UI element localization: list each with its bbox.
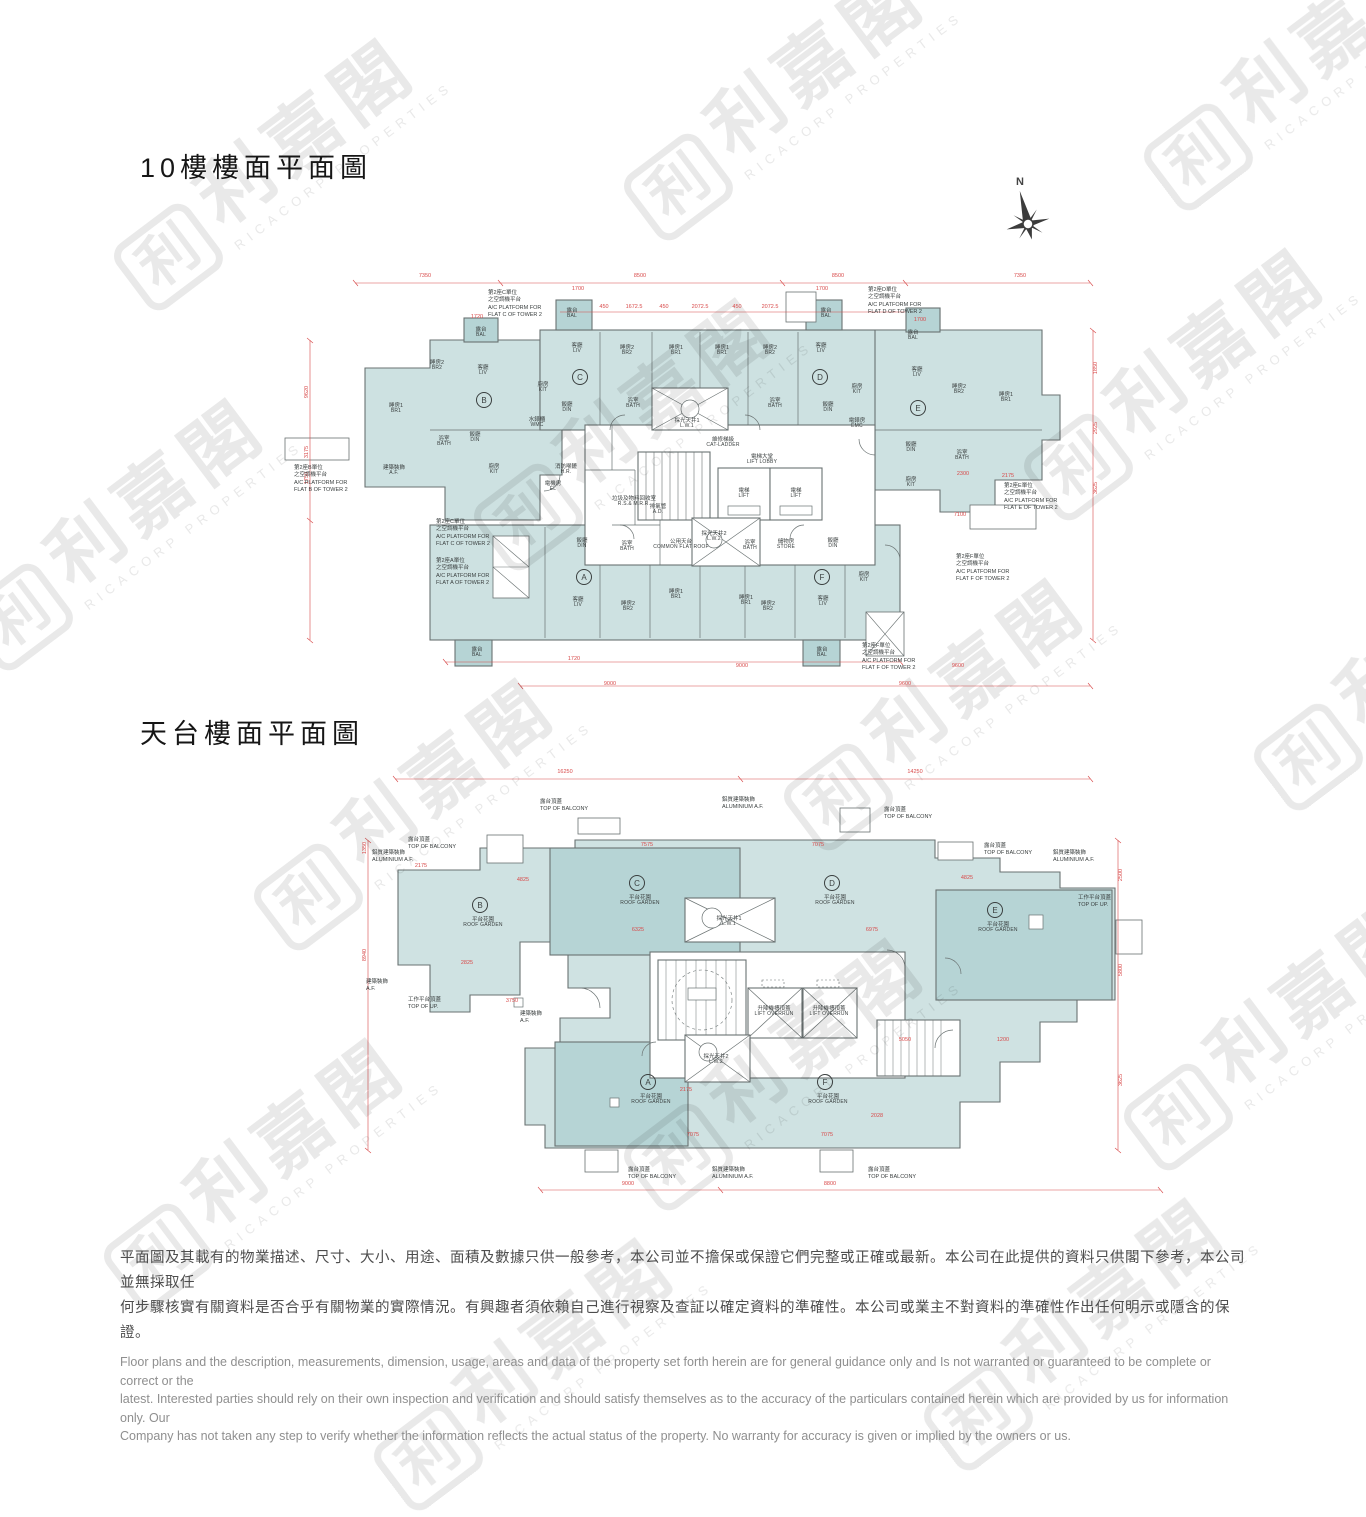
roof-callout: 露台頂蓋TOP OF BALCONY [408,837,456,852]
room-name-en: BR1 [669,595,683,601]
room-name-en: BR2 [621,607,635,613]
plan10-flat-E: E [910,400,926,416]
room-name-en: LIV [817,602,828,608]
roof-callout: 露台頂蓋TOP OF BALCONY [868,1167,916,1182]
plan10-room-label: 電機房EL [545,481,562,493]
plan10-dim-label: 450 [732,304,741,310]
plan10-room-label: 睡房1BR1 [669,589,683,601]
room-name-en: DIN [469,438,480,444]
callout-line: A/C PLATFORM FOR [436,534,490,541]
plan10-room-label: 電錶房EMC [849,418,866,430]
roof-dim-label: 1200 [997,1037,1009,1043]
disclaimer-en-line: Company has not taken any step to verify… [120,1427,1250,1446]
plan10-room-label: 浴室BATH [620,541,634,553]
room-name-en: A.D. [650,510,667,516]
room-name-en: ROOF GARDEN [815,901,854,907]
plan10-room-label: 露台BAL [566,308,577,320]
room-name-en: BR1 [999,398,1013,404]
plan10-room-label: 浴室BATH [626,398,640,410]
callout-line: A/C PLATFORM FOR [294,480,348,487]
roof-dim-label: 3625 [1118,1074,1124,1086]
room-name-en: LIV [572,603,583,609]
plan10-flat-F: F [814,569,830,585]
roof-callout: 建築裝飾A.F. [366,979,388,994]
room-name-en: KIT [851,390,862,396]
callout-line: FLAT C OF TOWER 2 [488,312,542,319]
room-name-en: BR1 [669,351,683,357]
callout-line: TOP OF BALCONY [540,806,588,813]
roof-callout: 鋁質建築裝飾ALUMINIUM A.F. [372,850,414,865]
callout-line: TOP OF BALCONY [408,844,456,851]
title-floor10: 10樓樓面平面圖 [140,146,372,185]
roof-room-label: 採光天井2L.W.2 [703,1054,728,1066]
plan10-callout: 第2座B單位之空調機平台A/C PLATFORM FORFLAT B OF TO… [294,465,348,495]
callout-line: 露台頂蓋 [408,837,456,844]
plan10-room-label: 公用天台COMMON FLAT ROOF [653,539,709,551]
room-name-en: BAL [816,653,827,659]
room-name-en: DIN [905,448,916,454]
plan10-dim-label: 1700 [816,286,828,292]
callout-line: FLAT A OF TOWER 2 [436,580,489,587]
roof-flat-E: E [987,902,1003,918]
roof-dim-label: 6975 [866,927,878,933]
room-name-en: LIFT OVERRUN [755,1012,794,1018]
plan10-room-label: 睡房1BR1 [389,403,403,415]
plan10-room-label: 儲物房STORE [777,539,795,551]
room-name-en: KIT [537,388,548,394]
roof-callout: 露台頂蓋TOP OF BALCONY [540,799,588,814]
plan10-dim-label: 8500 [832,273,844,279]
plan10-room-label: 廚房KIT [858,572,869,584]
roof-dim-label: 5050 [899,1037,911,1043]
room-name-en: H.R. [555,470,577,476]
plan10-room-label: 睡房2BR2 [952,384,966,396]
callout-line: TOP OF UP. [408,1004,441,1011]
plan10-room-label: 採光天井1L.W.1 [674,418,699,430]
annotations-layer: 睡房2BR2客廳LIV睡房1BR1飯廳DIN浴室BATH露台BAL廚房KIT水錶… [0,0,1366,1366]
callout-line: 露台頂蓋 [868,1167,916,1174]
plan10-room-label: 露台BAL [907,330,918,342]
callout-line: 露台頂蓋 [884,807,932,814]
callout-line: 之空調機平台 [436,565,489,572]
plan10-room-label: 客廳LIV [911,367,922,379]
plan10-dim-label: 7350 [1014,273,1026,279]
callout-line: FLAT E OF TOWER 2 [1004,505,1058,512]
plan10-room-label: 飯廳DIN [905,442,916,454]
compass-icon [998,176,1062,262]
plan10-room-label: 睡房2BR2 [761,601,775,613]
room-name-en: LIFT OVERRUN [810,1012,849,1018]
plan10-flat-A: A [576,569,592,585]
plan10-callout: 第2座F單位之空調機平台A/C PLATFORM FORFLAT F OF TO… [862,643,915,673]
callout-line: 鋁質建築裝飾 [372,850,414,857]
plan10-callout: 第2座D單位之空調機平台A/C PLATFORM FORFLAT D OF TO… [868,287,922,317]
room-name-en: DIN [822,408,833,414]
roof-callout: 露台頂蓋TOP OF BALCONY [628,1167,676,1182]
plan10-room-label: 消防喉轆H.R. [555,464,577,476]
floorplan-page: { "page": {"width": 1366, "height": 1366… [0,0,1366,1366]
callout-line: TOP OF BALCONY [984,850,1032,857]
roof-callout: 工作平台頂蓋TOP OF UP. [408,997,441,1012]
plan10-room-label: 客廳LIV [477,365,488,377]
room-name-en: LIV [815,349,826,355]
room-name-en: CAT-LADDER [706,443,739,449]
roof-dim-label: 14250 [907,769,922,775]
plan10-flat-C: C [572,369,588,385]
roof-dim-label: 2500 [1118,869,1124,881]
plan10-room-label: 水錶櫃WMC [529,417,546,429]
room-name-en: LIFT LOBBY [747,460,777,466]
roof-room-label: 平台花園ROOF GARDEN [815,895,854,907]
callout-line: 建築裝飾 [366,979,388,986]
plan10-callout: 第2座E單位之空調機平台A/C PLATFORM FORFLAT E OF TO… [1004,483,1058,513]
callout-line: 鋁質建築裝飾 [1053,850,1095,857]
callout-line: 鋁質建築裝飾 [722,797,764,804]
roof-dim-label: 7075 [812,842,824,848]
plan10-room-label: 廚房KIT [851,384,862,396]
callout-line: TOP OF BALCONY [628,1174,676,1181]
plan10-room-label: 排氣管A.D. [650,504,667,516]
callout-line: 工作平台頂蓋 [408,997,441,1004]
room-name-en: DIN [561,408,572,414]
roof-dim-label: 3750 [506,998,518,1004]
roof-callout: 露台頂蓋TOP OF BALCONY [884,807,932,822]
plan10-room-label: 客廳LIV [571,343,582,355]
plan10-room-label: 廚房KIT [488,464,499,476]
plan10-room-label: 睡房2BR2 [763,345,777,357]
roof-room-label: 平台花園ROOF GARDEN [463,917,502,929]
room-name-en: LIV [911,373,922,379]
roof-flat-F: F [817,1074,833,1090]
room-name-en: DIN [827,544,838,550]
roof-callout: 鋁質建築裝飾ALUMINIUM A.F. [1053,850,1095,865]
plan10-dim-label: 8500 [634,273,646,279]
roof-dim-label: 16250 [557,769,572,775]
roof-dim-label: 8940 [362,949,368,961]
room-name-en: BATH [743,546,757,552]
room-name-en: BAL [820,314,831,320]
disclaimer-en-line: latest. Interested parties should rely o… [120,1390,1250,1427]
roof-dim-label: 2825 [461,960,473,966]
callout-line: TOP OF UP. [1078,902,1111,909]
callout-line: 之空調機平台 [436,526,490,533]
room-name-en: BR2 [763,351,777,357]
roof-room-label: 平台花園ROOF GARDEN [808,1094,847,1106]
plan10-room-label: 睡房2BR2 [430,360,444,372]
plan10-room-label: 客廳LIV [572,597,583,609]
plan10-room-label: 飯廳DIN [469,432,480,444]
roof-room-label: 平台花園ROOF GARDEN [978,922,1017,934]
callout-line: FLAT D OF TOWER 2 [868,309,922,316]
room-name-en: BR2 [430,366,444,372]
room-name-en: BAL [471,653,482,659]
roof-callout: 建築裝飾A.F. [520,1011,542,1026]
roof-room-label: 升降機槽頂蓋LIFT OVERRUN [755,1006,794,1018]
plan10-room-label: 浴室BATH [768,398,782,410]
room-name-en: KIT [488,470,499,476]
callout-line: A.F. [520,1018,542,1025]
callout-line: ALUMINIUM A.F. [372,857,414,864]
roof-dim-label: 2175 [415,863,427,869]
room-name-en: KIT [905,483,916,489]
callout-line: ALUMINIUM A.F. [712,1174,754,1181]
room-name-en: BAL [907,336,918,342]
room-name-en: ROOF GARDEN [463,923,502,929]
plan10-room-label: 浴室BATH [437,436,451,448]
plan10-dim-label: 2925 [1093,422,1099,434]
roof-dim-label: 7575 [641,842,653,848]
callout-line: A/C PLATFORM FOR [1004,498,1058,505]
plan10-dim-label: 2300 [957,471,969,477]
room-name-en: BR1 [389,409,403,415]
plan10-room-label: 露台BAL [475,327,486,339]
plan10-callout: 第2座C單位之空調機平台A/C PLATFORM FORFLAT C OF TO… [436,519,490,549]
room-name-en: BR2 [952,390,966,396]
north-label: N [1016,176,1024,188]
plan10-room-label: 廚房KIT [537,382,548,394]
room-name-en: L.W.2 [703,1060,728,1066]
plan10-room-label: 飯廳DIN [827,538,838,550]
plan10-flat-B: B [476,392,492,408]
room-name-en: L.W.1 [716,922,741,928]
room-name-en: ROOF GARDEN [808,1100,847,1106]
room-name-en: BATH [768,404,782,410]
roof-callout: 鋁質建築裝飾ALUMINIUM A.F. [712,1167,754,1182]
plan10-room-label: 露台BAL [816,647,827,659]
roof-room-label: 平台花園ROOF GARDEN [631,1094,670,1106]
roof-flat-B: B [472,897,488,913]
room-name-en: EMC [849,424,866,430]
room-name-en: L.W.2 [701,537,726,543]
room-name-en: ROOF GARDEN [978,928,1017,934]
room-name-en: BR2 [620,351,634,357]
room-name-en: BATH [620,547,634,553]
plan10-room-label: 露台BAL [471,647,482,659]
callout-line: 之空調機平台 [294,472,348,479]
roof-dim-label: 2028 [871,1113,883,1119]
room-name-en: BATH [626,404,640,410]
callout-line: 露台頂蓋 [540,799,588,806]
callout-line: 之空調機平台 [862,650,915,657]
plan10-dim-label: 2072.5 [692,304,709,310]
room-name-en: BATH [955,456,969,462]
room-name-en: ROOF GARDEN [620,901,659,907]
plan10-dim-label: 9600 [952,663,964,669]
callout-line: A/C PLATFORM FOR [436,573,489,580]
room-name-en: A.F. [383,471,405,477]
plan10-room-label: 睡房1BR1 [669,345,683,357]
plan10-room-label: 客廳LIV [815,343,826,355]
plan10-dim-label: 9600 [899,681,911,687]
roof-dim-label: 1350 [362,842,368,854]
room-name-en: BAL [475,333,486,339]
roof-flat-D: D [824,875,840,891]
callout-line: FLAT F OF TOWER 2 [956,576,1009,583]
callout-line: ALUMINIUM A.F. [722,804,764,811]
plan10-dim-label: 2072.5 [762,304,779,310]
room-name-en: BR1 [715,351,729,357]
roof-dim-label: 7075 [821,1132,833,1138]
roof-dim-label: 7075 [687,1132,699,1138]
callout-line: 建築裝飾 [520,1011,542,1018]
room-name-en: KIT [858,578,869,584]
plan10-callout: 第2座C單位之空調機平台A/C PLATFORM FORFLAT C OF TO… [488,290,542,320]
room-name-en: STORE [777,545,795,551]
title-roof: 天台樓面平面圖 [140,712,364,751]
plan10-room-label: 露台BAL [820,308,831,320]
plan10-room-label: 飯廳DIN [561,402,572,414]
room-name-en: LIFT [738,494,749,500]
roof-flat-C: C [629,875,645,891]
room-name-en: LIV [571,349,582,355]
north-compass: N [998,176,1062,267]
room-name-en: WMC [529,423,546,429]
roof-dim-label: 2175 [680,1087,692,1093]
room-name-en: BR1 [739,601,753,607]
plan10-room-label: 睡房2BR2 [620,345,634,357]
plan10-flat-D: D [812,369,828,385]
roof-callout: 露台頂蓋TOP OF BALCONY [984,843,1032,858]
roof-callout: 鋁質建築裝飾ALUMINIUM A.F. [722,797,764,812]
room-name-en: BATH [437,442,451,448]
callout-line: ALUMINIUM A.F. [1053,857,1095,864]
roof-dim-label: 6325 [632,927,644,933]
plan10-room-label: 睡房1BR1 [999,392,1013,404]
plan10-dim-label: 450 [659,304,668,310]
room-name-en: L.W.1 [674,424,699,430]
plan10-dim-label: 7100 [954,512,966,518]
disclaimer-zh-line: 平面圖及其載有的物業描述、尺寸、大小、用途、面積及數據只供一般參考，本公司並不擔… [120,1246,1250,1296]
plan10-dim-label: 450 [599,304,608,310]
plan10-room-label: 睡房2BR2 [621,601,635,613]
plan10-dim-label: 9000 [604,681,616,687]
callout-line: A/C PLATFORM FOR [488,305,542,312]
room-name-en: BR2 [761,607,775,613]
plan10-dim-label: 7350 [419,273,431,279]
plan10-room-label: 睡房1BR1 [715,345,729,357]
plan10-dim-label: 1720 [568,656,580,662]
callout-line: FLAT F OF TOWER 2 [862,665,915,672]
plan10-dim-label: 1700 [914,317,926,323]
plan10-room-label: 廚房KIT [905,477,916,489]
plan10-dim-label: 1672.5 [626,304,643,310]
plan10-callout: 第2座A單位之空調機平台A/C PLATFORM FORFLAT A OF TO… [436,558,489,588]
room-name-en: BAL [566,314,577,320]
callout-line: 之空調機平台 [1004,490,1058,497]
roof-dim-label: 5800 [1118,964,1124,976]
plan10-dim-label: 3625 [1093,482,1099,494]
plan10-room-label: 建築裝飾A.F. [383,465,405,477]
callout-line: A/C PLATFORM FOR [868,302,922,309]
disclaimer-zh-line: 何步驟核實有關資料是否合乎有關物業的實際情況。有興趣者須依賴自己進行視察及查証以… [120,1296,1250,1346]
plan10-room-label: 飯廳DIN [576,538,587,550]
plan10-room-label: 維修梯級CAT-LADDER [706,437,739,449]
callout-line: A.F. [366,986,388,993]
roof-dim-label: 4825 [961,875,973,881]
plan10-room-label: 電梯LIFT [790,488,801,500]
plan10-callout: 第2座F單位之空調機平台A/C PLATFORM FORFLAT F OF TO… [956,554,1009,584]
room-name-en: COMMON FLAT ROOF [653,545,709,551]
callout-line: 露台頂蓋 [628,1167,676,1174]
callout-line: 鋁質建築裝飾 [712,1167,754,1174]
plan10-room-label: 電梯大堂LIFT LOBBY [747,454,777,466]
plan10-room-label: 飯廳DIN [822,402,833,414]
roof-room-label: 升降機槽頂蓋LIFT OVERRUN [810,1006,849,1018]
callout-line: FLAT B OF TOWER 2 [294,487,348,494]
callout-line: 之空調機平台 [868,294,922,301]
room-name-en: LIFT [790,494,801,500]
room-name-en: LIV [477,371,488,377]
disclaimer-en-line: Floor plans and the description, measure… [120,1353,1250,1390]
roof-flat-A: A [640,1074,656,1090]
plan10-dim-label: 3175 [304,446,310,458]
callout-line: FLAT C OF TOWER 2 [436,541,490,548]
roof-dim-label: 9000 [622,1181,634,1187]
roof-dim-label: 8800 [824,1181,836,1187]
callout-line: TOP OF BALCONY [868,1174,916,1181]
callout-line: 之空調機平台 [488,297,542,304]
roof-room-label: 平台花園ROOF GARDEN [620,895,659,907]
callout-line: 工作平台頂蓋 [1078,895,1111,902]
callout-line: 之空調機平台 [956,561,1009,568]
callout-line: TOP OF BALCONY [884,814,932,821]
plan10-room-label: 浴室BATH [955,450,969,462]
plan10-room-label: 電梯LIFT [738,488,749,500]
roof-callout: 工作平台頂蓋TOP OF UP. [1078,895,1111,910]
plan10-dim-label: 1850 [1093,362,1099,374]
plan10-room-label: 採光天井2L.W.2 [701,531,726,543]
plan10-dim-label: 9000 [736,663,748,669]
callout-line: A/C PLATFORM FOR [956,569,1009,576]
plan10-room-label: 浴室BATH [743,540,757,552]
room-name-en: DIN [576,544,587,550]
plan10-dim-label: 1720 [471,314,483,320]
callout-line: 露台頂蓋 [984,843,1032,850]
room-name-en: ROOF GARDEN [631,1100,670,1106]
roof-room-label: 採光天井1L.W.1 [716,916,741,928]
callout-line: A/C PLATFORM FOR [862,658,915,665]
roof-dim-label: 4825 [517,877,529,883]
disclaimer-english: Floor plans and the description, measure… [120,1353,1250,1446]
disclaimer-chinese: 平面圖及其載有的物業描述、尺寸、大小、用途、面積及數據只供一般參考，本公司並不擔… [120,1246,1250,1346]
plan10-dim-label: 9620 [304,386,310,398]
plan10-room-label: 睡房1BR1 [739,595,753,607]
room-name-en: EL [545,487,562,493]
plan10-dim-label: 1700 [572,286,584,292]
plan10-room-label: 客廳LIV [817,596,828,608]
plan10-dim-label: 2175 [1002,473,1014,479]
disclaimer: 平面圖及其載有的物業描述、尺寸、大小、用途、面積及數據只供一般參考，本公司並不擔… [120,1246,1250,1446]
